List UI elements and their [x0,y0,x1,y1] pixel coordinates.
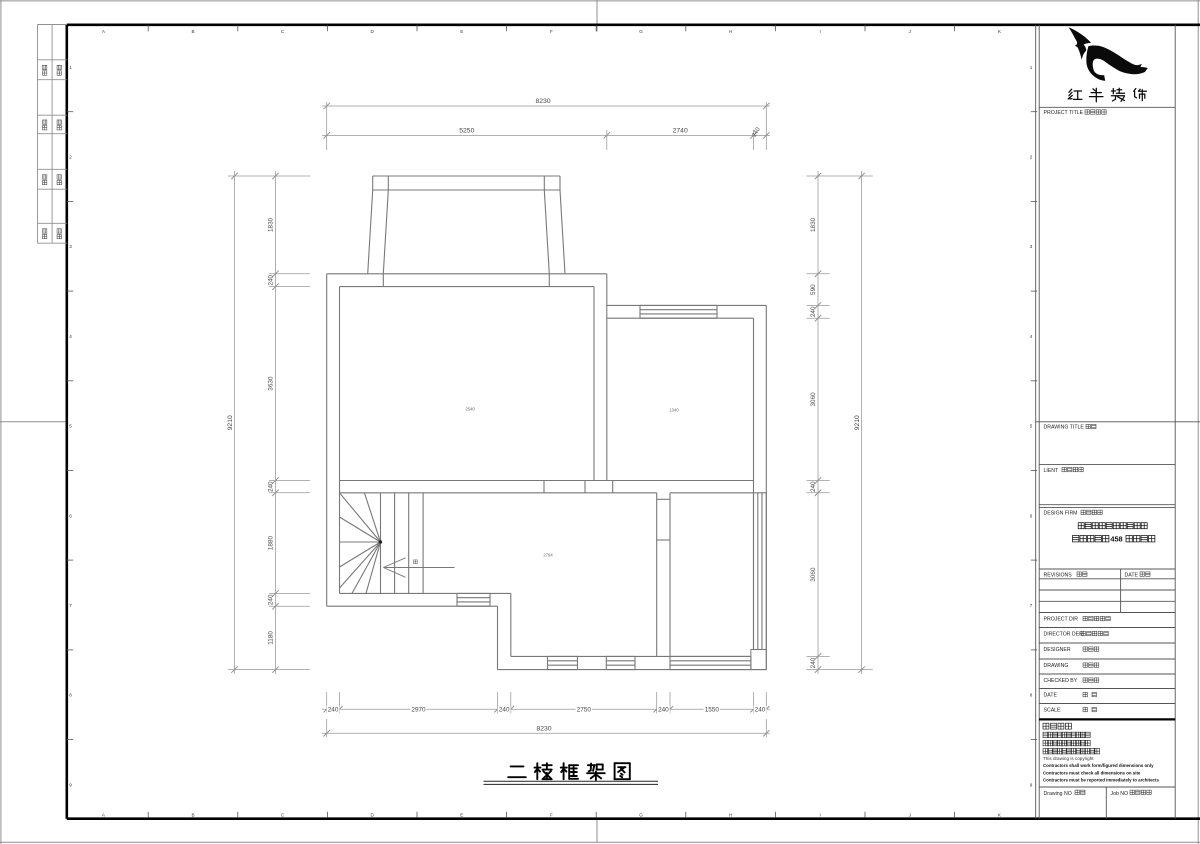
svg-text:3: 3 [1030,244,1033,249]
svg-text:8: 8 [1030,693,1033,698]
svg-text:This drawing is copyright: This drawing is copyright [1043,756,1094,761]
svg-text:2540: 2540 [465,407,475,412]
svg-text:590: 590 [810,284,817,295]
svg-text:REVISIONS: REVISIONS [1044,572,1073,578]
svg-text:G: G [639,29,643,34]
svg-text:1880: 1880 [268,536,275,551]
svg-text:LIENT: LIENT [1044,468,1060,474]
svg-text:1830: 1830 [810,217,817,232]
svg-text:240: 240 [268,594,275,605]
svg-text:8: 8 [69,693,72,698]
svg-text:8230: 8230 [536,726,551,733]
svg-text:240: 240 [328,707,339,714]
svg-text:2750: 2750 [577,707,592,714]
svg-text:1340: 1340 [669,408,679,413]
svg-text:7: 7 [1030,603,1033,608]
svg-text:E: E [460,29,463,34]
svg-text:240: 240 [810,481,817,492]
svg-text:9210: 9210 [227,415,234,430]
svg-text:1830: 1830 [268,217,275,232]
svg-text:3630: 3630 [268,376,275,391]
svg-text:DATE: DATE [1044,693,1058,699]
svg-text:6: 6 [1030,513,1033,518]
svg-text:5: 5 [69,424,72,429]
svg-text:3: 3 [69,244,72,249]
svg-text:4: 4 [69,334,72,339]
svg-text:Job NO: Job NO [1111,791,1129,797]
svg-text:DESIGN FIRM: DESIGN FIRM [1044,511,1078,517]
svg-text:240: 240 [810,657,817,668]
svg-text:2740: 2740 [673,128,688,135]
svg-text:1: 1 [1030,65,1033,70]
svg-text:DESIGNER: DESIGNER [1044,647,1071,653]
svg-text:2: 2 [1030,155,1033,160]
svg-text:DRAWING TITLE: DRAWING TITLE [1044,425,1085,431]
svg-text:Drawing NO: Drawing NO [1044,791,1072,797]
svg-text:7: 7 [69,603,72,608]
svg-text:PROJECT TITLE: PROJECT TITLE [1044,110,1084,116]
svg-text:240: 240 [268,481,275,492]
svg-text:B: B [191,29,194,34]
svg-text:Contractors shall work form/fi: Contractors shall work form/figured dime… [1043,763,1154,768]
svg-text:Contractors must be reported i: Contractors must be reported immediately… [1043,777,1159,782]
svg-text:3060: 3060 [810,567,817,582]
svg-text:2: 2 [69,155,72,160]
svg-text:B: B [191,813,194,818]
svg-text:9: 9 [1030,782,1033,787]
svg-text:G: G [639,813,643,818]
svg-text:6: 6 [69,513,72,518]
svg-text:2970: 2970 [411,707,426,714]
svg-text:E: E [460,813,463,818]
svg-text:240: 240 [268,274,275,285]
svg-text:H: H [729,29,732,34]
svg-text:CHECKED BY: CHECKED BY [1044,678,1078,684]
svg-text:1: 1 [69,65,72,70]
svg-text:4: 4 [1030,334,1033,339]
svg-text:SCALE: SCALE [1044,708,1062,714]
svg-text:PROJECT DIR: PROJECT DIR [1044,617,1079,623]
svg-text:8230: 8230 [535,98,550,105]
svg-text:F: F [550,29,553,34]
svg-text:3060: 3060 [810,392,817,407]
svg-text:240: 240 [810,306,817,317]
svg-text:9210: 9210 [854,415,861,430]
svg-text:9: 9 [69,782,72,787]
svg-text:2794: 2794 [543,553,553,558]
svg-text:5250: 5250 [459,128,474,135]
svg-text:DRAWING: DRAWING [1044,663,1069,669]
svg-text:240: 240 [658,707,669,714]
svg-text:I: I [820,29,821,34]
svg-text:H: H [729,813,732,818]
svg-text:DATE: DATE [1125,572,1139,578]
svg-text:J: J [909,29,911,34]
svg-text:1550: 1550 [705,707,720,714]
svg-text:5: 5 [1030,424,1033,429]
svg-text:F: F [550,813,553,818]
svg-text:Contractors must check all dim: Contractors must check all dimensions on… [1043,770,1141,775]
svg-text:J: J [909,813,911,818]
svg-text:I: I [820,813,821,818]
svg-text:DIRECTOR DER: DIRECTOR DER [1044,632,1084,638]
svg-text:1180: 1180 [268,631,275,645]
svg-text:240: 240 [499,707,510,714]
svg-text:240: 240 [755,707,766,714]
svg-text:458: 458 [1110,535,1122,544]
